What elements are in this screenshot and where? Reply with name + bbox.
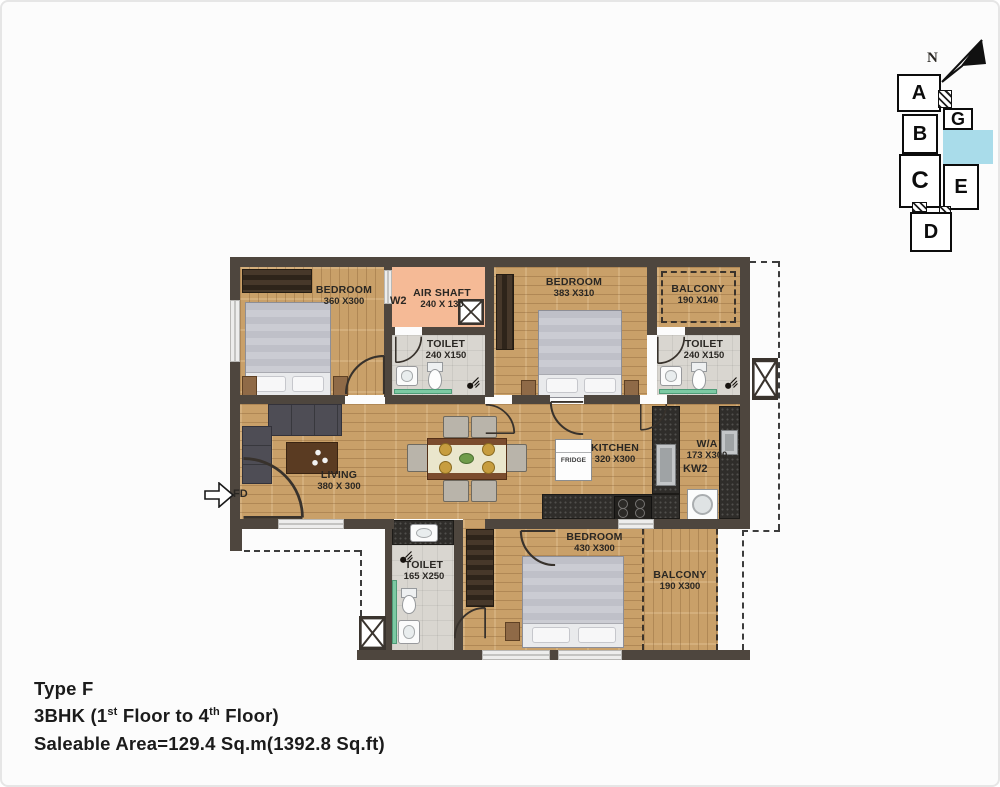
dashed-boundary (742, 530, 744, 650)
room-label-toilet-top: TOILET 240 X150 (412, 339, 480, 361)
wall (384, 327, 395, 335)
block-letter: E (954, 176, 967, 199)
door-arc (548, 401, 586, 435)
room-name: BALCONY (662, 284, 734, 296)
vanity-basin (410, 524, 438, 542)
block-letter: B (913, 123, 927, 146)
wall (647, 265, 657, 329)
door-arc (480, 404, 520, 434)
room-dims: 360 X300 (294, 297, 394, 308)
pillow (292, 376, 324, 392)
stove (614, 496, 652, 520)
key-plan-block-c: C (899, 154, 941, 208)
config-part: Floor to 4 (118, 705, 210, 726)
room-dims: 240 X150 (412, 351, 480, 362)
room-name: BEDROOM (547, 532, 642, 544)
pillow (578, 627, 616, 643)
room-label-bedroom-top-right: BEDROOM 383 X310 (524, 277, 624, 299)
room-label-balcony-top: BALCONY 190 X140 (662, 284, 734, 306)
toilet-sink (398, 620, 420, 644)
bed (522, 556, 624, 648)
room-label-toilet-bottom: TOILET 165 X250 (396, 560, 452, 582)
entrance-arrow-icon (204, 482, 234, 508)
room-label-living: LIVING 380 X 300 (296, 470, 382, 492)
entrance-label: FD (233, 488, 248, 500)
bed (538, 310, 622, 398)
nightstand (505, 622, 520, 641)
pillow (532, 627, 570, 643)
kitchen-counter-bottom (542, 494, 680, 519)
dining-chair (407, 444, 429, 472)
toilet-counter-glass (659, 389, 717, 394)
sink-bowl (416, 528, 433, 538)
room-name: TOILET (412, 339, 480, 351)
north-label: N (927, 50, 938, 67)
room-dims: 383 X310 (524, 289, 624, 300)
key-plan-block-b: B (902, 114, 938, 154)
room-dims: 173 X300 (680, 451, 734, 462)
sink-basin (660, 448, 672, 482)
burner-icon (635, 508, 645, 518)
plate-icon (482, 443, 495, 456)
pillow (254, 376, 286, 392)
toilet-glass-partition (392, 580, 397, 644)
dining-chair (471, 480, 497, 502)
config-part: Floor) (220, 705, 279, 726)
wall (584, 395, 640, 404)
sofa (268, 404, 342, 436)
room-dims: 190 X300 (646, 582, 714, 593)
room-name: TOILET (396, 560, 452, 572)
room-name: LIVING (296, 470, 382, 482)
plate-icon (439, 461, 452, 474)
room-label-bedroom-bottom: BEDROOM 430 X300 (547, 532, 642, 554)
room-label-balcony-bottom: BALCONY 190 X300 (646, 570, 714, 592)
washer-drum (692, 494, 713, 515)
entrance-door-arc (242, 457, 304, 519)
saleable-area-text: Saleable Area=129.4 Sq.m(1392.8 Sq.ft) (34, 733, 385, 755)
dashed-boundary (750, 261, 778, 263)
toilet-sink (396, 366, 418, 386)
room-name: BALCONY (646, 570, 714, 582)
window (618, 519, 654, 529)
wall (647, 327, 657, 335)
dashed-boundary (742, 530, 780, 532)
dashed-boundary (360, 550, 362, 616)
key-plan-block-d: D (910, 212, 952, 252)
shower-head-icon (466, 376, 480, 390)
door-arc (454, 606, 486, 640)
block-letter: A (912, 82, 926, 105)
room-name: TOILET (670, 339, 738, 351)
center-dish-icon (459, 453, 474, 464)
wc-bowl (692, 369, 706, 390)
block-letter: G (951, 109, 965, 130)
wall (740, 257, 750, 529)
wardrobe (466, 529, 494, 607)
key-plan-shaft-hatch (912, 202, 927, 212)
plate-icon (439, 443, 452, 456)
room-dims: 380 X 300 (296, 482, 382, 493)
toilet-counter-glass (394, 389, 452, 394)
config-part: 3BHK (1 (34, 705, 107, 726)
wall (667, 395, 750, 404)
burner-icon (618, 508, 628, 518)
wall (385, 520, 392, 650)
shaft-x-box (752, 358, 778, 400)
toilet-wc (400, 588, 418, 614)
north-arrow-icon (940, 38, 988, 84)
dashed-boundary (244, 550, 360, 552)
room-dims: 240 X150 (670, 351, 738, 362)
shaft-x-box (359, 616, 386, 650)
ordinal-suffix: th (209, 706, 220, 718)
wall (512, 395, 550, 404)
room-name: W/A (680, 439, 734, 451)
wall (357, 650, 750, 660)
wc-bowl (428, 369, 442, 390)
bed (245, 302, 331, 398)
floor-plan-page: FRIDGE (0, 0, 1000, 787)
wc-bowl (402, 595, 416, 614)
plan-config-subtitle: 3BHK (1st Floor to 4th Floor) (34, 705, 279, 727)
key-plan-block-e: E (943, 164, 979, 210)
key-plan: N A B G C E D (882, 36, 1000, 258)
wash-area-window-label: KW2 (683, 463, 707, 475)
toilet-wc (426, 362, 444, 390)
room-dims: 190 X140 (662, 296, 734, 307)
washing-machine (687, 489, 718, 520)
sink-bowl (403, 625, 416, 639)
ordinal-suffix: st (107, 706, 117, 718)
wall (422, 327, 494, 335)
room-label-kitchen: KITCHEN 320 X300 (579, 443, 651, 465)
toilet-sink (660, 366, 682, 386)
key-plan-block-a: A (897, 74, 941, 112)
block-letter: D (924, 221, 938, 244)
block-letter: C (911, 167, 928, 195)
room-label-bedroom-top-left: BEDROOM 360 X300 (294, 285, 394, 307)
kitchen-sink (656, 444, 676, 486)
dining-chair (443, 480, 469, 502)
room-name: KITCHEN (579, 443, 651, 455)
window (482, 650, 550, 660)
wall (385, 395, 485, 404)
room-label-toilet-right: TOILET 240 X150 (670, 339, 738, 361)
pillow (546, 378, 578, 393)
dashed-boundary (778, 261, 780, 530)
room-dims: 430 X300 (547, 544, 642, 555)
room-label-wash-area: W/A 173 X300 (680, 439, 734, 461)
toilet-wc (690, 362, 708, 390)
room-name: BEDROOM (294, 285, 394, 297)
nightstand (242, 376, 257, 396)
wall (685, 327, 750, 335)
room-dims: 320 X300 (579, 455, 651, 466)
shower-head-icon (724, 376, 738, 390)
wall (230, 519, 242, 551)
pillow (584, 378, 616, 393)
window (230, 300, 240, 362)
air-shaft-window-label: W2 (390, 295, 407, 307)
plan-type-title: Type F (34, 678, 93, 700)
window (278, 519, 344, 529)
key-plan-highlighted-unit (943, 130, 993, 164)
key-plan-shaft-hatch (938, 90, 952, 108)
wash-area-counter (719, 406, 740, 519)
window (558, 650, 622, 660)
key-plan-block-g: G (943, 108, 973, 130)
room-label-air-shaft: AIR SHAFT 240 X 130 (406, 288, 478, 310)
wardrobe (496, 274, 514, 350)
room-name: AIR SHAFT (406, 288, 478, 300)
door-arc (640, 402, 667, 432)
sink-bowl (401, 370, 414, 382)
room-dims: 240 X 130 (406, 300, 478, 311)
room-name: BEDROOM (524, 277, 624, 289)
door-arc (345, 355, 385, 395)
wall (230, 395, 345, 404)
plate-icon (482, 461, 495, 474)
dining-chair (505, 444, 527, 472)
room-dims: 165 X250 (396, 572, 452, 583)
sink-bowl (665, 370, 678, 382)
dining-chair (443, 416, 469, 438)
